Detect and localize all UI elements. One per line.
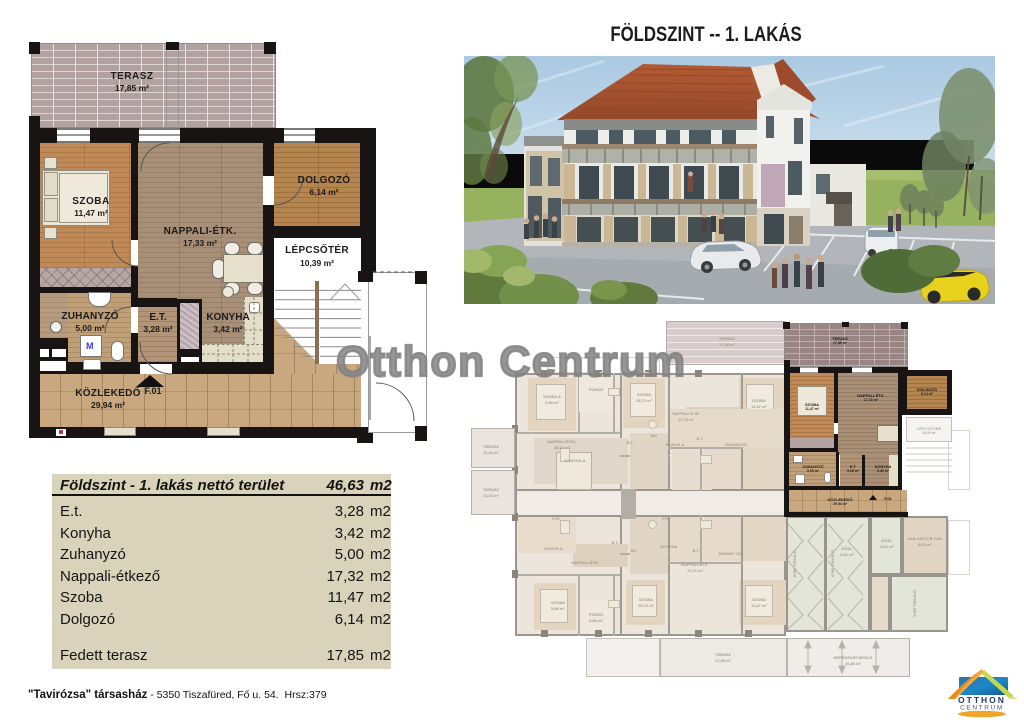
svg-text:OTTHON: OTTHON [958,695,1006,705]
svg-text:CENTRUM: CENTRUM [960,705,1004,712]
